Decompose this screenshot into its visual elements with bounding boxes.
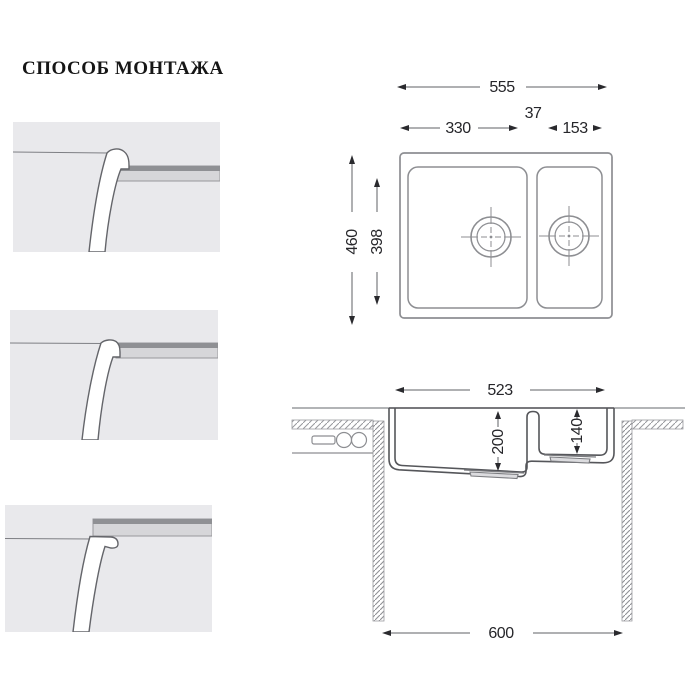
dim-label-600: 600: [488, 625, 514, 642]
dim-label-523: 523: [487, 382, 513, 399]
dim-label-398: 398: [369, 229, 386, 255]
countertop-section-right: [632, 420, 683, 429]
page-title: СПОСОБ МОНТАЖА: [22, 58, 224, 80]
dim-200: 200: [490, 411, 507, 471]
bowl-2: [537, 167, 602, 308]
mount-detail-flushmount: [10, 310, 218, 440]
sink-section-view: 523: [285, 375, 700, 665]
installation-diagram-page: СПОСОБ МОНТАЖА: [0, 0, 700, 700]
dim-600: 600: [382, 625, 623, 642]
top-mount-icon: [13, 122, 220, 252]
countertop-section-left: [292, 420, 373, 429]
sink-top-view: 555 330 37 153: [330, 60, 670, 350]
flush-mount-icon: [10, 310, 218, 440]
dim-label-153: 153: [562, 120, 588, 137]
dim-555: 555: [397, 79, 607, 96]
cabinet-front-detail: [292, 433, 373, 454]
cabinet-wall-right: [622, 421, 632, 621]
sink-section-drawing: 523: [285, 375, 700, 665]
dim-label-555: 555: [489, 79, 515, 96]
dim-label-140: 140: [569, 418, 586, 444]
dim-460: 460: [344, 155, 361, 325]
dim-523: 523: [395, 382, 605, 399]
cabinet-wall-left: [373, 421, 384, 621]
sink-top-view-drawing: 555 330 37 153: [330, 60, 670, 350]
dim-330-37-153: 330 37 153: [400, 105, 602, 137]
dim-label-330: 330: [445, 120, 471, 137]
mount-detail-undermount: [5, 505, 212, 632]
under-mount-icon: [5, 505, 212, 632]
dim-label-460: 460: [344, 229, 361, 255]
dim-label-37: 37: [525, 105, 542, 122]
dim-140: 140: [569, 409, 586, 454]
mount-detail-topmount: [13, 122, 220, 252]
dim-398: 398: [369, 178, 386, 305]
dim-label-200: 200: [490, 429, 507, 455]
